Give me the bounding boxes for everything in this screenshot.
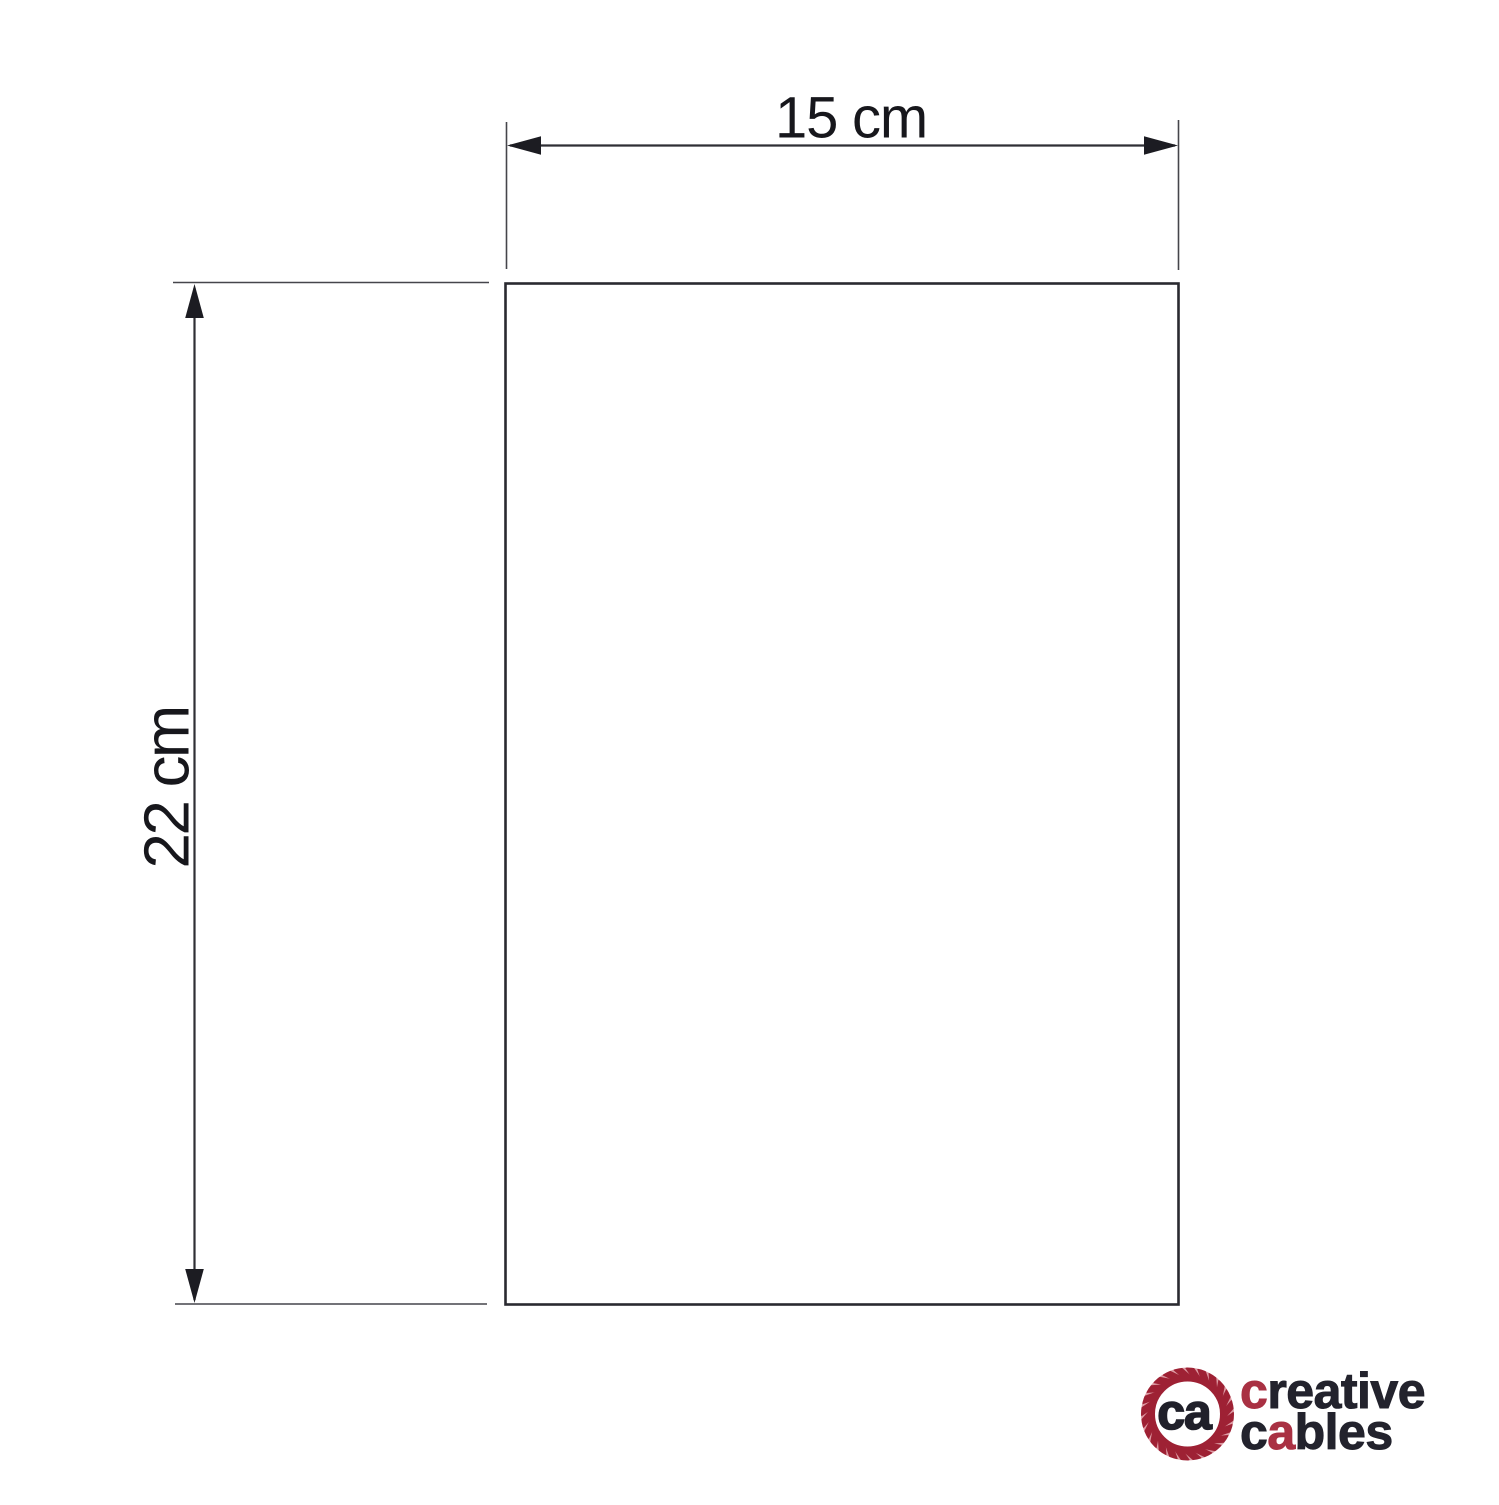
svg-text:cables: cables (1240, 1404, 1393, 1460)
svg-text:22 cm: 22 cm (131, 707, 203, 868)
svg-text:15 cm: 15 cm (775, 86, 927, 151)
svg-text:ca: ca (1157, 1384, 1213, 1440)
